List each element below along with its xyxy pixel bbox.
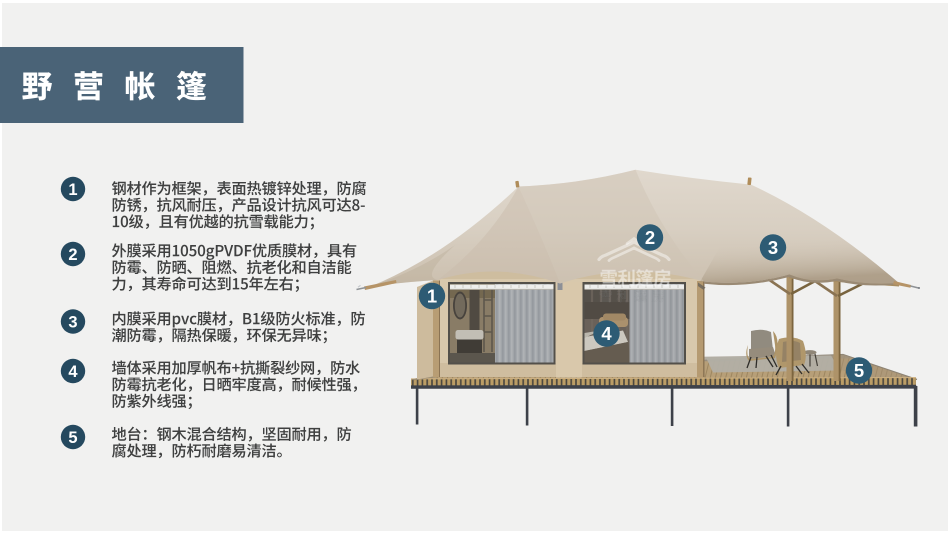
svg-text:1: 1 bbox=[68, 181, 77, 199]
svg-text:2: 2 bbox=[645, 227, 655, 248]
svg-text:3: 3 bbox=[768, 237, 778, 258]
svg-text:5: 5 bbox=[854, 360, 864, 381]
svg-text:4: 4 bbox=[68, 363, 78, 381]
svg-text:2: 2 bbox=[68, 246, 77, 264]
svg-text:3: 3 bbox=[68, 313, 77, 331]
svg-text:5: 5 bbox=[68, 429, 77, 447]
svg-text:1: 1 bbox=[427, 286, 437, 307]
svg-text:4: 4 bbox=[601, 323, 612, 344]
